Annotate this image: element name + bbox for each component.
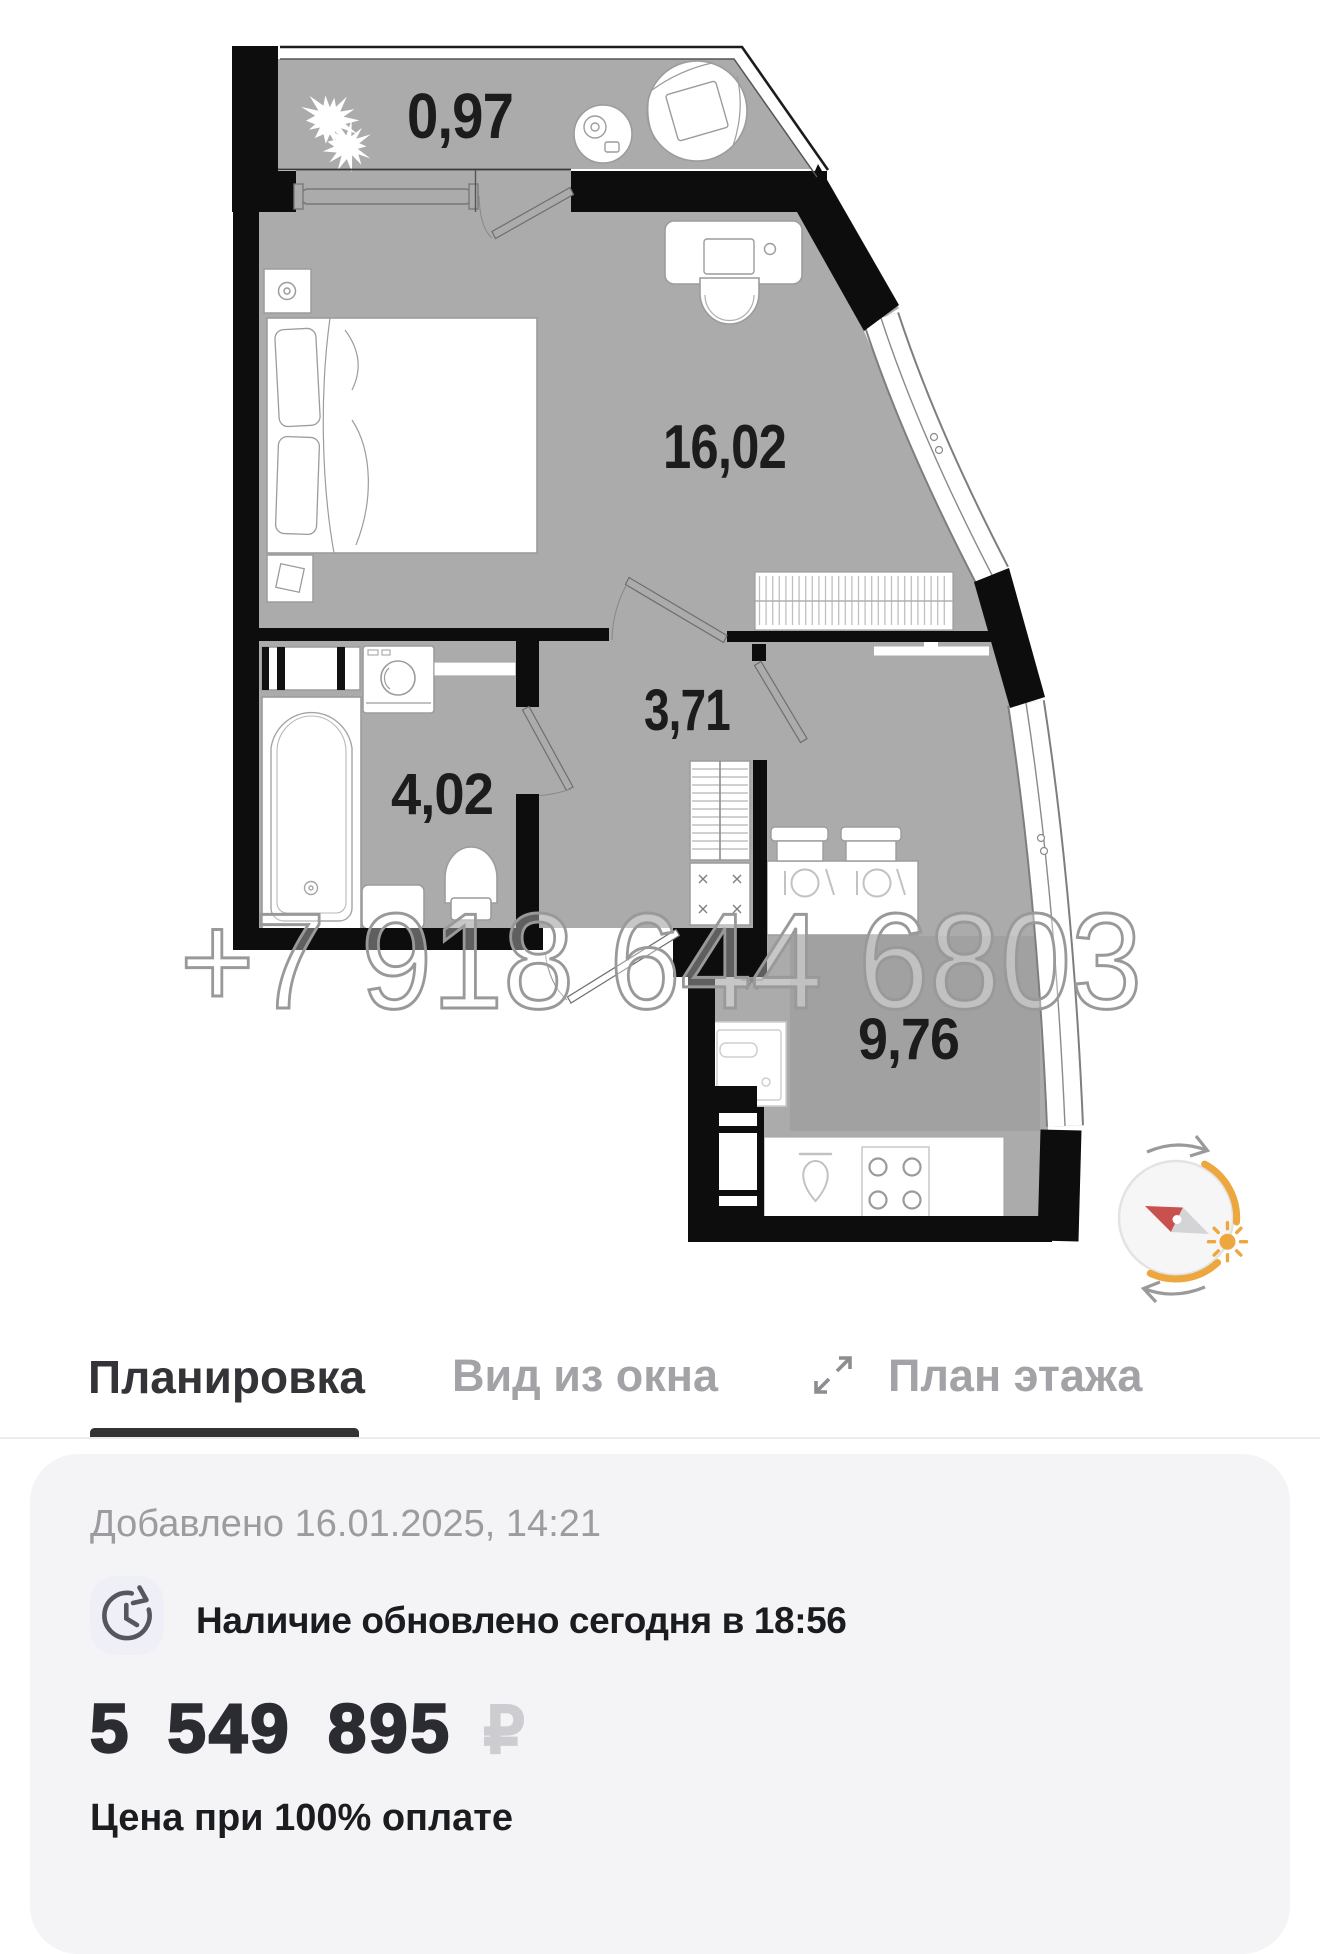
svg-text:4,02: 4,02 (391, 762, 493, 827)
svg-text:3,71: 3,71 (644, 678, 730, 743)
svg-text:+7 918 644 6803: +7 918 644 6803 (180, 885, 1142, 1037)
svg-text:16,02: 16,02 (663, 413, 786, 482)
svg-text:0,97: 0,97 (407, 80, 513, 152)
